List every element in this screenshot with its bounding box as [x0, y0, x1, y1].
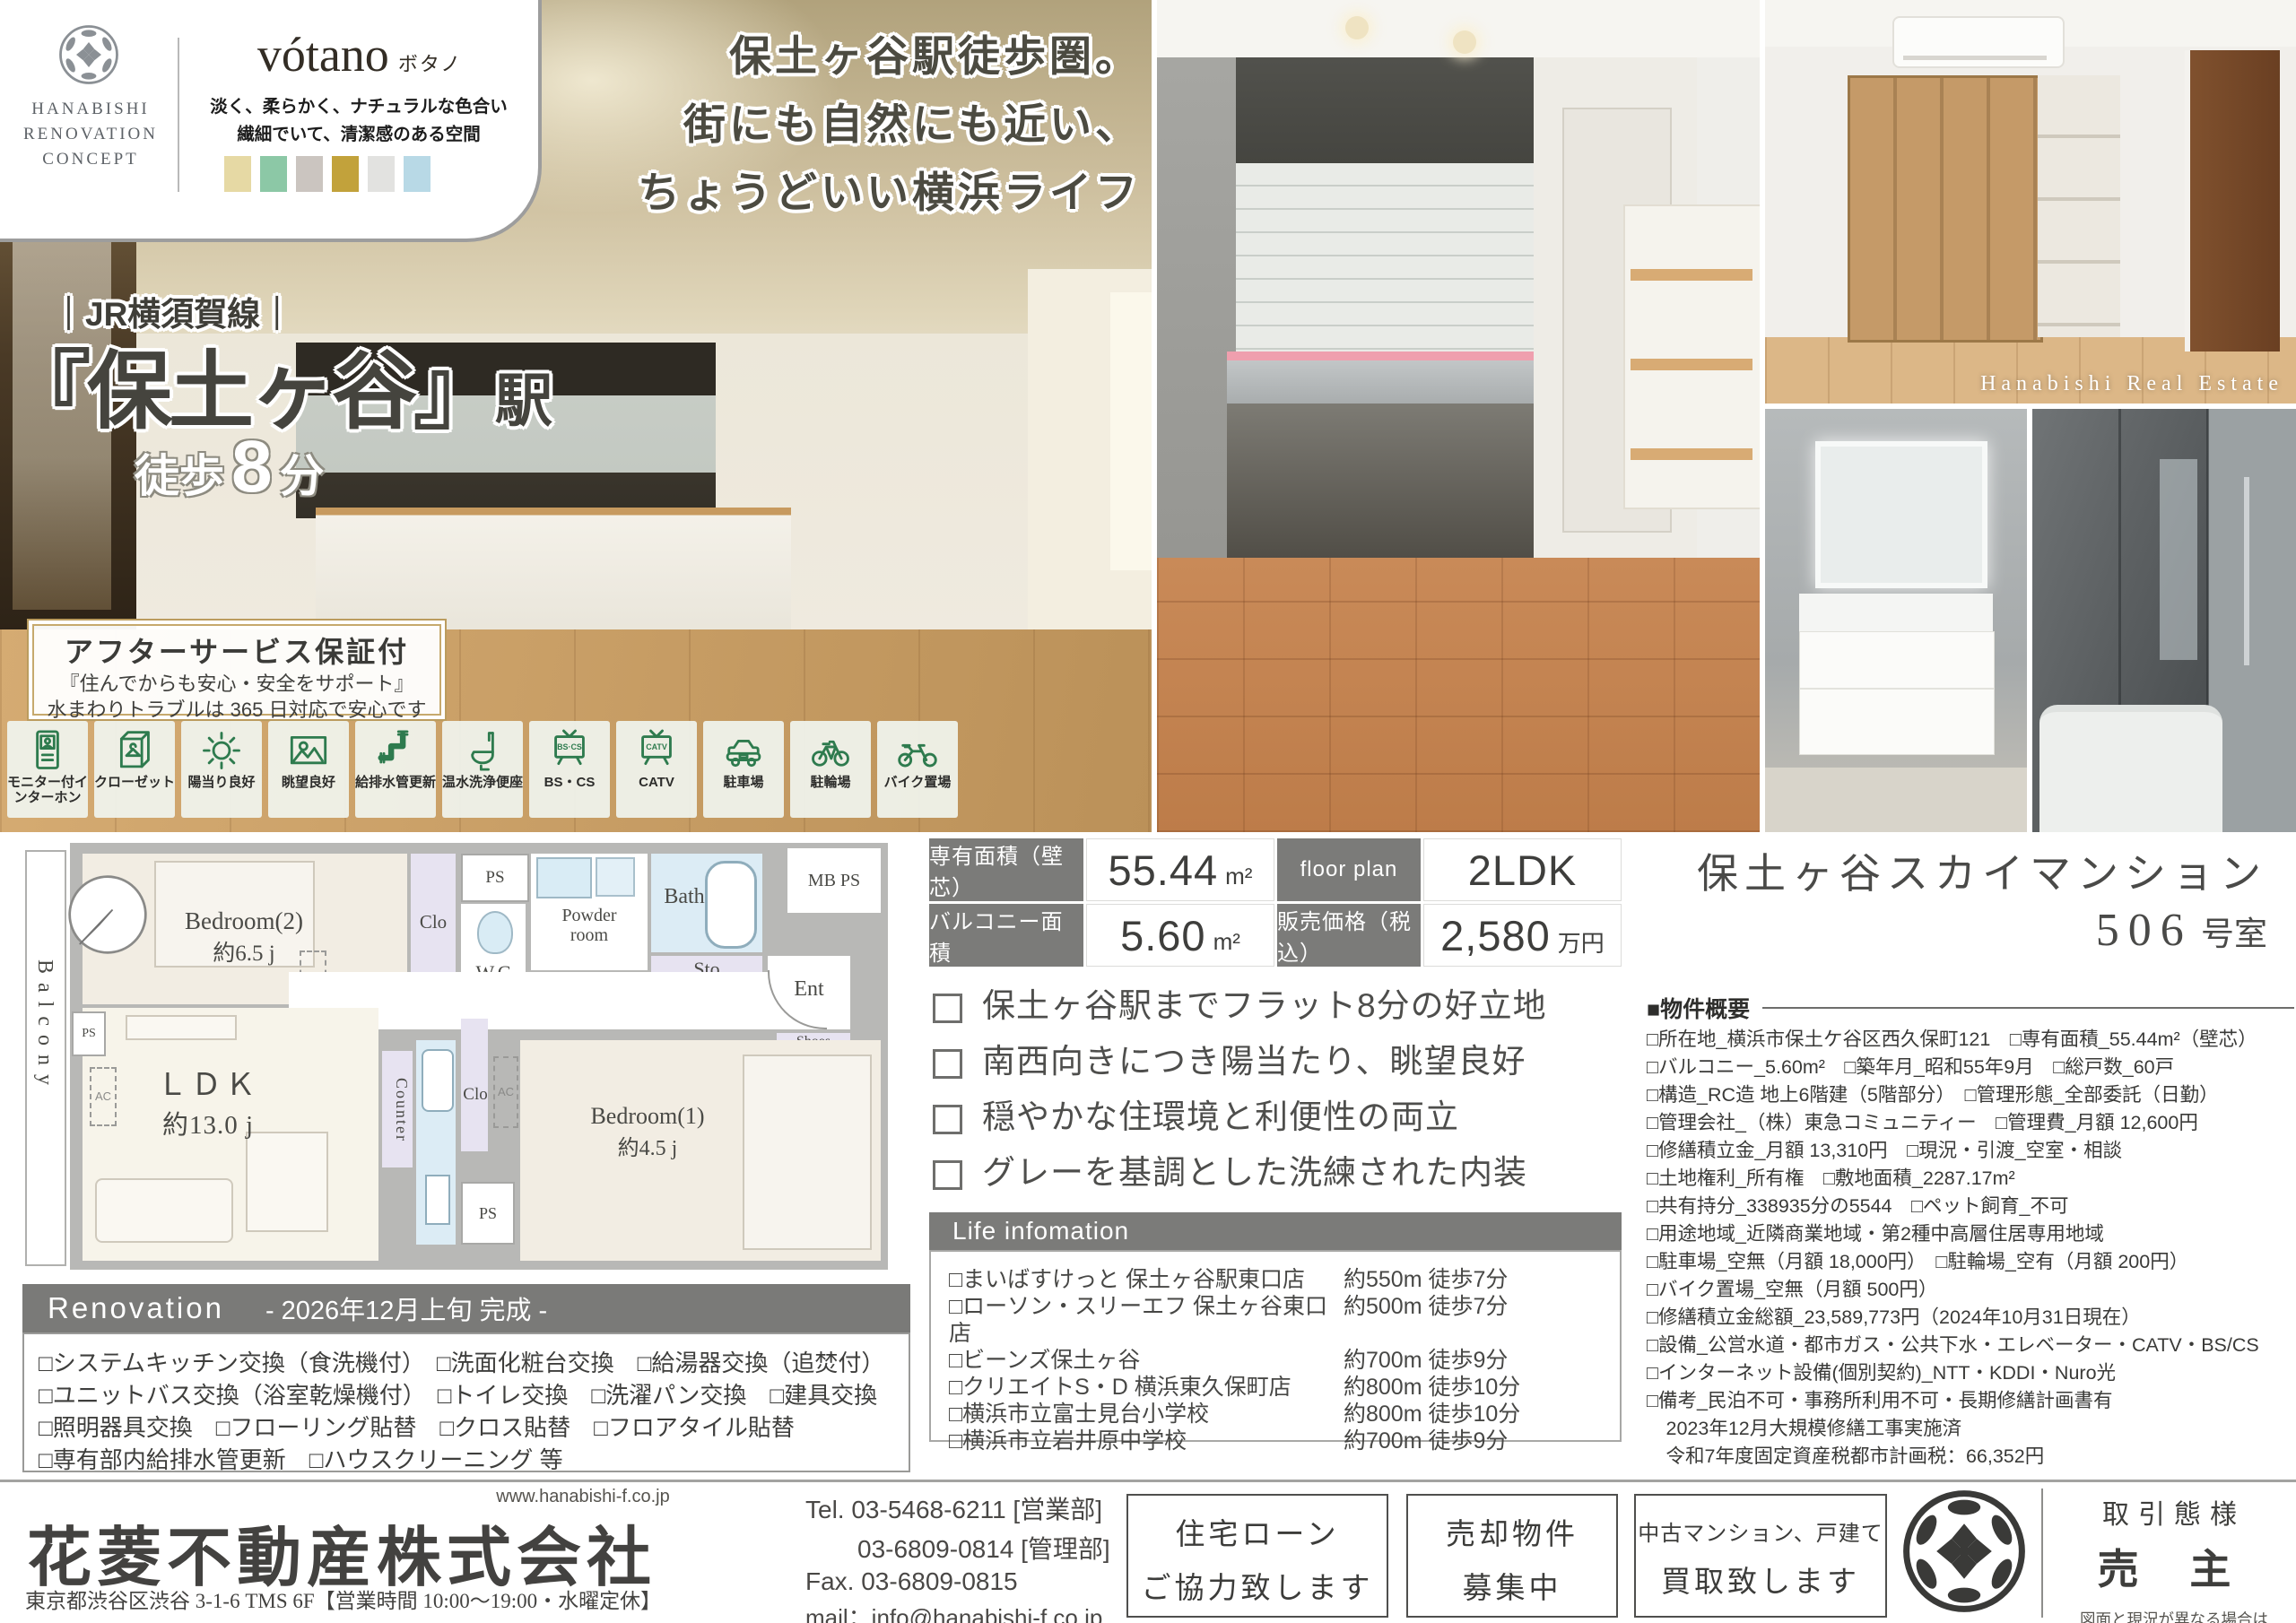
powder-label: Powder room: [531, 906, 648, 945]
catch-copy-line2: 街にも自然にも近い、: [592, 91, 1141, 160]
after-service-warranty-box: アフターサービス保証付 『住んでからも安心・安全をサポート』 水まわりトラブルは…: [27, 619, 447, 721]
bedroom-door: [2185, 50, 2280, 352]
bedroom1-size: 約4.5 j: [558, 1130, 737, 1161]
poi-distance: 約700m 徒歩9分: [1344, 1347, 1604, 1374]
hanabishi-crest-logo: [1901, 1488, 2027, 1614]
terracotta-floor: [1157, 558, 1760, 832]
feature-parking: 駐車場: [703, 721, 784, 818]
svg-text:BS·CS: BS·CS: [557, 742, 582, 751]
brand-logo-line: RENOVATION: [14, 122, 167, 147]
property-line: □用途地域_近隣商業地域・第2種中高層住居専用地域: [1647, 1220, 2296, 1248]
concept-name-latin: vótano: [257, 28, 389, 82]
renovation-row: □照明器具交換 □フローリング貼替 □クロス貼替 □フロアタイル貼替: [39, 1411, 909, 1444]
catch-copy-line3: ちょうどいい横浜ライフ: [592, 160, 1141, 228]
company-address: 東京都渋谷区渋谷 3-1-6 TMS 6F【営業時間 10:00～19:00・水…: [25, 1584, 661, 1614]
catch-copy-line1: 保土ヶ谷駅徒歩圏。: [592, 23, 1141, 91]
counter-label: Counter: [384, 1058, 411, 1162]
car-icon: [720, 727, 767, 774]
floor-plan: Balcony Bedroom(2) 約6.5 j AC Clo PS W.C …: [20, 836, 912, 1280]
ldk-name: ＬＤＫ: [109, 1060, 307, 1104]
ac-box: AC: [90, 1067, 117, 1126]
feature-label: 温水洗浄便座: [442, 775, 523, 790]
floorplan-label: floor plan: [1277, 838, 1421, 901]
life-info-row: □クリエイトS・D 横浜東久保町店 約800m 徒歩10分: [949, 1374, 1620, 1401]
listing-box-line1: 売却物件: [1408, 1510, 1616, 1553]
card-divider: [178, 38, 179, 192]
selling-point-text: 南西向きにつき陽当たり、眺望良好: [982, 1040, 1526, 1083]
listing-box-line2: 募集中: [1408, 1564, 1616, 1607]
loan-box-line1: 住宅ローン: [1128, 1510, 1387, 1553]
room-suffix: 号室: [2193, 916, 2267, 953]
powder-label-1: Powder: [531, 906, 648, 925]
area-value: 55.44 m²: [1086, 838, 1274, 901]
intercom-icon: [24, 727, 71, 774]
balcony-number: 5.60: [1120, 911, 1205, 960]
shelf-board: [1631, 269, 1752, 281]
life-info-row: □横浜市立岩井原中学校 約700m 徒歩9分: [949, 1428, 1620, 1454]
poi-distance: 約800m 徒歩10分: [1344, 1401, 1604, 1428]
property-line: □駐車場_空無（月額 18,000円） □駐輪場_空有（月額 200円）: [1647, 1248, 2296, 1276]
area-label: 専有面積（壁芯）: [929, 838, 1083, 901]
feature-label: 眺望良好: [282, 775, 335, 790]
warranty-title: アフターサービス保証付: [29, 629, 445, 671]
property-line: □設備_公営水道・都市ガス・公共下水・エレベーター・CATV・BS/CS: [1647, 1332, 2296, 1359]
price-unit: 万円: [1558, 925, 1605, 959]
hanabishi-crest-icon: [57, 23, 120, 86]
color-swatch: [260, 156, 287, 192]
catch-copy: 保土ヶ谷駅徒歩圏。 街にも自然にも近い、 ちょうどいい横浜ライフ: [592, 23, 1141, 228]
property-line: 2023年12月大規模修繕工事実施済: [1647, 1415, 2296, 1443]
color-swatch: [368, 156, 395, 192]
kitchen-base-cabinets: [1227, 404, 1534, 558]
renovation-completion: - 2026年12月上旬 完成 -: [265, 1289, 547, 1327]
ps-shaft: PS: [461, 1182, 515, 1245]
warranty-sub2: 水まわりトラブルは 365 日対応で安心です: [29, 697, 445, 723]
wood-closet-doors: [1848, 75, 2043, 343]
property-line: □所在地_横浜市保土ケ谷区西久保町121 □専有面積_55.44m²（壁芯）: [1647, 1026, 2296, 1054]
vanity-mirror: [1815, 441, 1987, 588]
station-suffix: 駅: [495, 369, 552, 433]
poi-name: □まいばすけっと 保土ヶ谷駅東口店: [949, 1266, 1344, 1293]
price-label: 販売価格（税込）: [1277, 904, 1421, 967]
kitchen-open-shelf: [1623, 204, 1760, 509]
warranty-sub1: 『住んでからも安心・安全をサポート』: [29, 671, 445, 697]
brand-logo-line: CONCEPT: [14, 147, 167, 172]
balcony-unit: m²: [1213, 928, 1240, 956]
ps-shaft: PS: [72, 1011, 106, 1056]
svg-text:CATV: CATV: [646, 742, 667, 751]
ps-shaft: PS: [461, 854, 529, 902]
toilet-icon: [459, 727, 506, 774]
room-number: 506: [2096, 905, 2193, 956]
renovation-row: □ユニットバス交換（浴室乾燥機付） □トイレ交換 □洗濯パン交換 □建具交換: [39, 1379, 909, 1411]
property-overview-header: ■物件概要: [1647, 992, 2294, 1024]
ldk-size: 約13.0 j: [109, 1104, 307, 1141]
poi-name: □横浜市立富士見台小学校: [949, 1401, 1344, 1428]
bed-sketch: [743, 1055, 872, 1250]
property-line: □土地権利_所有権 □敷地面積_2287.17m²: [1647, 1165, 2296, 1193]
selling-point-text: 保土ヶ谷駅までフラット8分の好立地: [982, 985, 1547, 1028]
washbasin-photo: [1765, 409, 2027, 832]
area-unit: m²: [1225, 863, 1252, 890]
living-window-light: [1110, 292, 1152, 570]
life-info-row: □まいばすけっと 保土ヶ谷駅東口店 約550m 徒歩7分: [949, 1266, 1620, 1293]
poi-distance: 約550m 徒歩7分: [1344, 1266, 1604, 1293]
feature-label: 陽当り良好: [187, 775, 255, 790]
tel-sales: Tel. 03-5468-6211 [営業部]: [805, 1490, 1102, 1526]
renovation-items: □システムキッチン交換（食洗機付） □洗面化粧台交換 □給湯器交換（追焚付） □…: [22, 1332, 910, 1472]
area-number: 55.44: [1109, 846, 1219, 895]
property-line: □インターネット設備(個別契約)_NTT・KDDI・Nuro光: [1647, 1359, 2296, 1387]
checkbox-icon: [933, 1160, 962, 1190]
property-line: □構造_RC造 地上6階建（5階部分） □管理形態_全部委託（日勤）: [1647, 1081, 2296, 1109]
renovation-row: □専有部内給排水管更新 □ハウスクリーニング 等: [39, 1444, 909, 1476]
feature-motorcycle: バイク置場: [877, 721, 958, 818]
purchase-box-line1: 中古マンション、戸建て: [1636, 1515, 1885, 1547]
balcony-label: Balcony: [32, 959, 57, 1094]
downlight: [1453, 30, 1476, 54]
brand-card: HANABISHI RENOVATION CONCEPT vótanoボタノ 淡…: [0, 0, 542, 242]
property-room: 506 号室: [1650, 904, 2267, 957]
life-info-row: □横浜市立富士見台小学校 約800m 徒歩10分: [949, 1401, 1620, 1428]
shower-bar: [2244, 477, 2249, 665]
feature-label: 給排水管更新: [355, 775, 436, 790]
walk-minutes: 8: [231, 426, 273, 508]
poi-distance: 約800m 徒歩10分: [1344, 1374, 1604, 1401]
feature-label: 駐輪場: [810, 775, 850, 790]
air-conditioner: [1892, 16, 2065, 68]
shelf-board: [1631, 448, 1752, 460]
mbps-shaft: MB PS: [787, 848, 881, 913]
powder-label-2: room: [531, 925, 648, 945]
life-info-list: □まいばすけっと 保土ヶ谷駅東口店 約550m 徒歩7分 □ローソン・スリーエフ…: [929, 1250, 1622, 1442]
ldk-label: ＬＤＫ 約13.0 j: [109, 1060, 307, 1141]
balcony-area-value: 5.60 m²: [1086, 904, 1274, 967]
view-icon: [285, 727, 332, 774]
kitchen-sink-counter: [1227, 352, 1534, 404]
property-line: □共有持分_338935分の5544 □ペット飼育_不可: [1647, 1193, 2296, 1220]
selling-point: 保土ヶ谷駅までフラット8分の好立地: [933, 985, 1632, 1028]
selling-point-text: 穏やかな住環境と利便性の両立: [982, 1096, 1459, 1139]
tv-board-sketch: [126, 1015, 237, 1040]
concept-tagline-1: 淡く、柔らかく、ナチュラルな色合い: [190, 93, 527, 121]
property-line: □修繕積立金総額_23,589,773円（2024年10月31日現在）: [1647, 1304, 2296, 1332]
fax-number: Fax. 03-6809-0815: [805, 1567, 1018, 1596]
bedroom2-name: Bedroom(2): [127, 907, 361, 935]
checkbox-icon: [933, 1049, 962, 1079]
motorcycle-icon: [894, 727, 941, 774]
renovation-title: Renovation: [48, 1291, 224, 1325]
closet-icon: [111, 727, 158, 774]
bathroom-photo: [2032, 409, 2296, 832]
closet-label: Clo: [456, 1085, 495, 1105]
feature-sunny: 陽当り良好: [181, 721, 262, 818]
feature-view: 眺望良好: [268, 721, 349, 818]
vanity-floor: [1765, 768, 2027, 832]
listing-wanted-box: 売却物件 募集中: [1406, 1494, 1618, 1618]
renovation-row: □システムキッチン交換（食洗機付） □洗面化粧台交換 □給湯器交換（追焚付）: [39, 1347, 909, 1379]
brand-logo-text: HANABISHI RENOVATION CONCEPT: [14, 97, 167, 172]
feature-label: モニター付インターホン: [7, 775, 88, 805]
dealing-label: 取引態様: [2056, 1492, 2292, 1532]
color-swatch: [224, 156, 251, 192]
loan-box-line2: ご協力致します: [1128, 1564, 1387, 1607]
downlight: [1345, 16, 1369, 39]
bicycle-icon: [807, 727, 854, 774]
sun-icon: [198, 727, 245, 774]
property-line: □管理会社_（株）東急コミュニティー □管理費_月額 12,600円: [1647, 1109, 2296, 1137]
feature-label: BS・CS: [544, 775, 596, 790]
selling-point: グレーを基調とした洗練された内装: [933, 1151, 1632, 1194]
kitchen-counter-front: [316, 508, 791, 635]
mail-address: mail：info@hanabishi-f.co.jp: [805, 1600, 1102, 1623]
property-line: □備考_民泊不可・事務所利用不可・長期修繕計画書有: [1647, 1387, 2296, 1415]
life-info-header: Life infomation: [929, 1212, 1622, 1250]
color-swatch: [404, 156, 430, 192]
life-info-row: □ビーンズ保土ヶ谷 約700m 徒歩9分: [949, 1347, 1620, 1374]
sofa-sketch: [95, 1178, 233, 1243]
feature-bicycle: 駐輪場: [790, 721, 871, 818]
bedroom1-name: Bedroom(1): [558, 1103, 737, 1130]
walk-suffix: 分: [280, 451, 325, 501]
dealing-type-block: 取引態様 売 主 図面と現況が異なる場合は 現況を優先いたします。: [2056, 1492, 2292, 1623]
poi-name: □横浜市立岩井原中学校: [949, 1428, 1344, 1454]
catv-tv-icon: CATV: [633, 727, 680, 774]
poi-name: □ビーンズ保土ヶ谷: [949, 1347, 1344, 1374]
floorplan-value: 2LDK: [1423, 838, 1622, 901]
closet-label: Clo: [411, 911, 456, 933]
dining-table-sketch: [246, 1132, 328, 1232]
walk-time: 徒歩8分: [135, 425, 325, 509]
bath-label: Bath: [653, 885, 716, 909]
brand-logo-line: HANABISHI: [14, 97, 167, 122]
feature-label: 駐車場: [723, 775, 763, 790]
kitchen-upper-cabinets: [1236, 52, 1534, 163]
property-line: 令和7年度固定資産税都市計画税：66,352円: [1647, 1443, 2296, 1471]
concept-name: vótanoボタノ: [203, 27, 517, 82]
poi-distance: 約700m 徒歩9分: [1344, 1428, 1604, 1454]
selling-point-text: グレーを基調とした洗練された内装: [982, 1151, 1527, 1194]
washer-pan: [596, 857, 635, 897]
feature-icon-row: モニター付インターホン クローゼット 陽当り良好 眺望良好: [7, 721, 958, 818]
color-swatch: [296, 156, 323, 192]
overview-rule: [1762, 1007, 2294, 1009]
bathtub: [2039, 705, 2222, 832]
overview-title: ■物件概要: [1647, 992, 1750, 1024]
dealing-value: 売 主: [2056, 1537, 2292, 1596]
property-line: □バルコニー_5.60m² □築年月_昭和55年9月 □総戸数_60戸: [1647, 1054, 2296, 1081]
toilet-bowl: [477, 911, 513, 954]
dealing-note: 図面と現況が異なる場合は 現況を優先いたします。: [2056, 1609, 2292, 1623]
compass-icon: [66, 873, 149, 956]
purchase-box: 中古マンション、戸建て 買取致します: [1634, 1494, 1887, 1618]
dealing-divider: [2041, 1488, 2043, 1618]
kitchen-strip: [416, 1040, 456, 1245]
kitchen-photo: [1157, 0, 1760, 832]
feature-bscs: BS·CS BS・CS: [529, 721, 610, 818]
sink-shape: [422, 1049, 454, 1112]
feature-washlet: 温水洗浄便座: [442, 721, 523, 818]
tel-admin: 03-6809-0814 [管理部]: [857, 1530, 1110, 1566]
loan-support-box: 住宅ローン ご協力致します: [1126, 1494, 1388, 1618]
dealing-note-1: 図面と現況が異なる場合は: [2056, 1609, 2292, 1623]
bedroom-photo: Hanabishi Real Estate: [1765, 0, 2296, 404]
color-swatch: [332, 156, 359, 192]
feature-label: バイク置場: [884, 775, 952, 790]
vanity-cabinet: [1799, 631, 1995, 755]
walk-prefix: 徒歩: [135, 451, 224, 501]
checkbox-icon: [933, 994, 962, 1023]
open-shelf-niche: [2038, 75, 2120, 337]
property-line: □バイク置場_空無（月額 500円）: [1647, 1276, 2296, 1304]
selling-point: 南西向きにつき陽当たり、眺望良好: [933, 1040, 1632, 1083]
photo-watermark: Hanabishi Real Estate: [1980, 372, 2283, 396]
property-overview-list: □所在地_横浜市保土ケ谷区西久保町121 □専有面積_55.44m²（壁芯） □…: [1647, 1026, 2296, 1471]
selling-points: 保土ヶ谷駅までフラット8分の好立地 南西向きにつき陽当たり、眺望良好 穏やかな住…: [933, 985, 1632, 1207]
poi-name: □ローソン・スリーエフ 保土ヶ谷東口店: [949, 1293, 1344, 1347]
property-name: 保土ヶ谷スカイマンション: [1650, 841, 2267, 900]
renovation-header: Renovation - 2026年12月上旬 完成 -: [22, 1284, 910, 1332]
feature-closet: クローゼット: [94, 721, 175, 818]
real-estate-flyer: Hanabishi Real Estate: [0, 0, 2296, 1623]
color-swatches: [224, 156, 430, 192]
price-number: 2,580: [1440, 911, 1551, 960]
feature-catv: CATV CATV: [616, 721, 697, 818]
bedroom1-label: Bedroom(1) 約4.5 j: [558, 1103, 737, 1161]
checkbox-icon: [933, 1105, 962, 1134]
feature-intercom: モニター付インターホン: [7, 721, 88, 818]
stove-shape: [425, 1175, 450, 1225]
poi-name: □クリエイトS・D 横浜東久保町店: [949, 1374, 1344, 1401]
kitchen-tile-wall: [1236, 163, 1534, 353]
property-line: □修繕積立金_月額 13,310円 □現況・引渡_空室・相談: [1647, 1137, 2296, 1165]
floorplan-type: 2LDK: [1468, 846, 1578, 895]
selling-point: 穏やかな住環境と利便性の両立: [933, 1096, 1632, 1139]
balcony-area-label: バルコニー面積: [929, 904, 1083, 967]
shelf-board: [1631, 359, 1752, 370]
feature-label: クローゼット: [94, 775, 175, 790]
feature-label: CATV: [639, 775, 674, 790]
price-value: 2,580 万円: [1423, 904, 1622, 967]
pipe-icon: [372, 727, 419, 774]
concept-tagline: 淡く、柔らかく、ナチュラルな色合い 繊細でいて、清潔感のある空間: [190, 93, 527, 149]
concept-name-kana: ボタノ: [398, 53, 462, 75]
footer-divider: [0, 1480, 2296, 1482]
feature-pipe: 給排水管更新: [355, 721, 436, 818]
concept-tagline-2: 繊細でいて、清潔感のある空間: [190, 121, 527, 149]
poi-distance: 約500m 徒歩7分: [1344, 1293, 1604, 1347]
bath-mirror: [2160, 459, 2197, 660]
spec-table: 専有面積（壁芯） 55.44 m² floor plan 2LDK バルコニー面…: [929, 838, 1622, 967]
vanity-basin: [1799, 594, 1993, 631]
balcony: Balcony: [25, 850, 66, 1266]
ac-box: AC: [493, 1056, 518, 1128]
purchase-box-line2: 買取致します: [1636, 1558, 1885, 1601]
life-info-row: □ローソン・スリーエフ 保土ヶ谷東口店 約500m 徒歩7分: [949, 1293, 1620, 1347]
washbasin: [536, 857, 592, 898]
bscs-tv-icon: BS·CS: [546, 727, 593, 774]
